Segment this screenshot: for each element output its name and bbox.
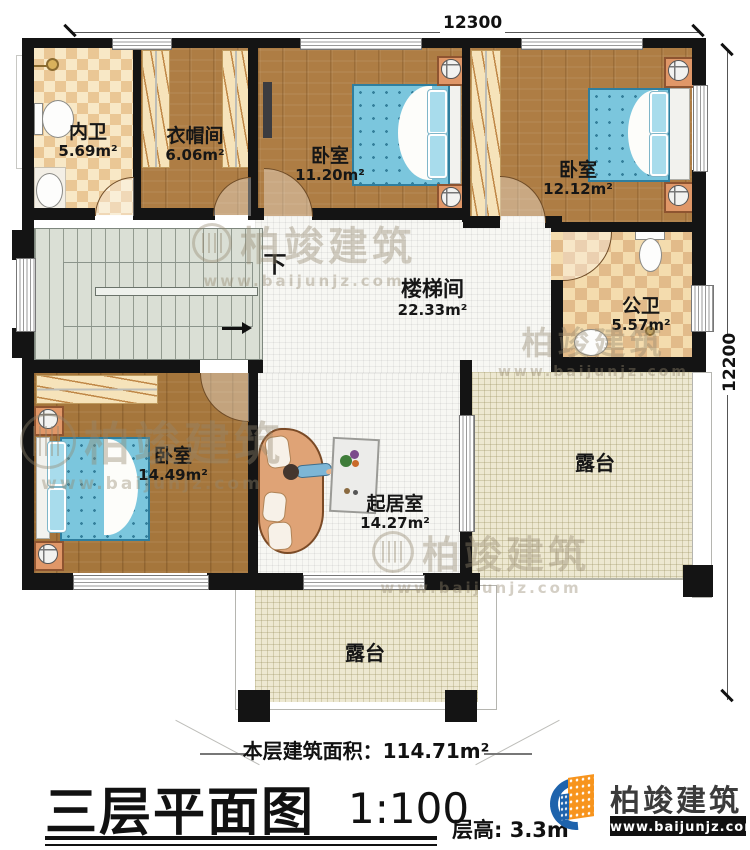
logo-building-icon-small (560, 793, 569, 820)
room-label-living: 起居室 14.27m² (350, 494, 440, 532)
window (73, 575, 209, 590)
dimension-tick (63, 24, 76, 37)
floor-area-label: 本层建筑面积： (243, 739, 383, 763)
sofa-cushion (261, 491, 287, 523)
wall (462, 48, 470, 222)
room-area: 5.69m² (48, 143, 128, 160)
wall (692, 330, 706, 372)
window (693, 85, 708, 172)
room-name: 露台 (555, 452, 635, 474)
window-frame-block (12, 328, 22, 358)
scale-text: 1:100 (348, 784, 469, 833)
room-label-master-bath: 内卫 5.69m² (48, 122, 128, 160)
room-label-terrace-bottom: 露台 (325, 642, 405, 664)
floor-area-line: 本层建筑面积：114.71m² (240, 735, 492, 764)
bed2-pillow (650, 92, 668, 134)
corner-column (238, 690, 270, 722)
bed1-pillow (428, 134, 447, 178)
table-flowers (350, 450, 359, 459)
floor-area-value: 114.71m² (383, 739, 490, 763)
stair-direction-arrowhead (242, 322, 252, 334)
wardrobe-strip (471, 50, 501, 220)
wall (22, 573, 73, 590)
brand-name: 柏竣建筑 (610, 776, 742, 820)
brand-logo: 柏竣建筑 www.baijunjz.com (548, 772, 748, 844)
room-label-bedroom1: 卧室 11.20m² (285, 146, 375, 184)
sofa-cushion (267, 521, 293, 551)
corner-column (445, 690, 477, 722)
window (303, 575, 425, 590)
dimension-tick (691, 24, 704, 37)
room-area: 22.33m² (385, 302, 480, 319)
wall (207, 573, 303, 590)
wall (22, 48, 34, 258)
bed3-pillow (48, 488, 66, 532)
title-underline-thin (45, 844, 437, 846)
window-frame-block (12, 230, 22, 260)
dimension-right: 12200 (720, 335, 740, 395)
room-name: 内卫 (48, 122, 128, 143)
wall (551, 280, 563, 357)
room-label-public-bath: 公卫 5.57m² (598, 296, 684, 334)
brand-url: www.baijunjz.com (610, 820, 750, 835)
room-area: 12.12m² (533, 181, 623, 198)
floor-plan-canvas: 内卫 5.69m² 衣帽间 6.06m² 卧室 11.20m² 卧室 12.12… (0, 0, 750, 850)
room-label-closet: 衣帽间 6.06m² (150, 126, 240, 164)
page-title: 三层平面图 (45, 770, 315, 845)
nightstand-lamp (441, 187, 461, 207)
room-name: 卧室 (533, 160, 623, 181)
wall (692, 48, 706, 85)
toilet-bowl (639, 238, 662, 272)
terrace-right-floor (472, 372, 692, 580)
room-name: 起居室 (350, 494, 440, 515)
room-label-stair-hall: 楼梯间 22.33m² (385, 278, 480, 318)
room-label-terrace-right: 露台 (555, 452, 635, 474)
nightstand-lamp (668, 60, 689, 81)
room-area: 11.20m² (285, 167, 375, 184)
stair-down-text: 下 (260, 253, 290, 279)
room-area: 14.49m² (130, 467, 216, 484)
wall (460, 530, 472, 575)
bed2-pillow (650, 134, 668, 176)
window (112, 38, 172, 50)
title-underline-thick (45, 836, 437, 840)
room-name: 公卫 (598, 296, 684, 317)
wall (423, 573, 480, 590)
wall (463, 216, 500, 228)
logo-building-icon (568, 774, 594, 820)
room-area: 5.57m² (598, 317, 684, 334)
corner-column (683, 565, 713, 597)
wall (133, 208, 215, 220)
room-name: 卧室 (130, 446, 216, 467)
wall (22, 208, 95, 220)
wall (460, 360, 472, 415)
window (300, 38, 422, 50)
sink-basin (36, 173, 63, 208)
wall (692, 170, 706, 285)
room-area: 14.27m² (350, 515, 440, 532)
room-name: 衣帽间 (150, 126, 240, 147)
window (459, 415, 475, 532)
bed3-pillow (48, 442, 66, 486)
room-name: 露台 (325, 642, 405, 664)
wall (248, 373, 258, 573)
wall (22, 360, 200, 373)
window (521, 38, 643, 50)
room-name: 卧室 (285, 146, 375, 167)
stair-direction-line (222, 327, 244, 330)
room-area: 6.06m² (150, 147, 240, 164)
table-flowers (352, 460, 359, 467)
shower-head-icon (46, 58, 59, 71)
person-head (283, 464, 299, 480)
stair-down-label: 下 (260, 253, 290, 279)
brand-url-bar: www.baijunjz.com (610, 816, 746, 836)
stair-handrail (95, 287, 258, 296)
window (691, 285, 714, 332)
nightstand-lamp (38, 409, 58, 429)
wall (248, 360, 263, 373)
tv-icon (263, 82, 272, 138)
wall (312, 208, 463, 220)
window (16, 258, 36, 332)
room-label-bedroom2: 卧室 12.12m² (533, 160, 623, 198)
nightstand-lamp (38, 544, 58, 564)
nightstand-lamp (441, 59, 461, 79)
wall (551, 357, 692, 372)
bed1-pillow (428, 90, 447, 134)
wall (133, 48, 141, 208)
room-label-bedroom3: 卧室 14.49m² (130, 446, 216, 484)
dimension-top: 12300 (440, 13, 505, 33)
wardrobe-top (36, 375, 158, 404)
wall (551, 222, 692, 232)
top-dimension-line (70, 32, 700, 33)
room-name: 楼梯间 (385, 278, 480, 302)
nightstand-lamp (668, 185, 689, 206)
